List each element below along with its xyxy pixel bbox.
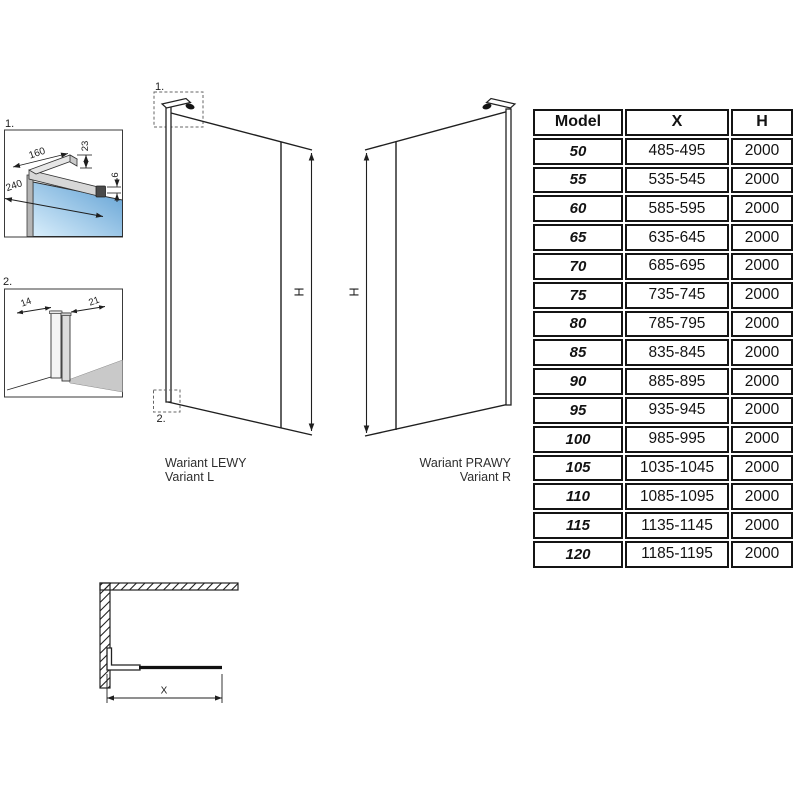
glass-top-edge [365,111,509,150]
table-row: 1151135-11452000 [533,512,793,539]
variant-right-caption-pl: Wariant PRAWY [420,456,512,470]
model-cell: 100 [533,426,623,453]
h-cell: 2000 [731,483,793,510]
table-row: 1201185-11952000 [533,541,793,568]
col-header-model: Model [533,109,623,136]
model-cell: 120 [533,541,623,568]
model-cell: 105 [533,455,623,482]
model-cell: 85 [533,339,623,366]
model-cell: 115 [533,512,623,539]
wall-strip [27,175,33,237]
variant-left-callout-2: 2. [157,413,166,425]
h-cell: 2000 [731,253,793,280]
h-cell: 2000 [731,311,793,338]
x-cell: 635-645 [625,224,729,251]
x-cell: 1085-1095 [625,483,729,510]
table-row: 1051035-10452000 [533,455,793,482]
variant-left-callout-1: 1. [155,81,164,93]
glass-bottom-edge [168,402,312,435]
variant-left-caption-en: Variant L [165,470,214,484]
profile-cap-left [50,311,63,314]
glass-top-edge [171,113,312,150]
wall-top-section [100,583,238,590]
spec-table: Model X H 50485-4952000 55535-5452000 60… [531,107,795,570]
x-cell: 485-495 [625,138,729,165]
variant-left-caption-pl: Wariant LEWY [165,456,247,470]
table-row: 95935-9452000 [533,397,793,424]
table-row: 50485-4952000 [533,138,793,165]
x-cell: 535-545 [625,167,729,194]
variant-right-drawing: H Wariant PRAWY Variant R [348,99,516,485]
height-dim-label: H [293,287,307,296]
support-bracket-plan [107,648,140,670]
dim-label-23: 23 [80,141,91,152]
x-cell: 1135-1145 [625,512,729,539]
callout-box-1 [154,92,203,127]
model-cell: 80 [533,311,623,338]
glass-bottom-edge [365,404,509,436]
x-cell: 585-595 [625,195,729,222]
h-cell: 2000 [731,195,793,222]
table-header-row: Model X H [533,109,793,136]
h-cell: 2000 [731,339,793,366]
table-row: 1101085-10952000 [533,483,793,510]
table-row: 100985-9952000 [533,426,793,453]
detail-2-drawing: 2. 14 21 [0,272,130,402]
x-cell: 935-945 [625,397,729,424]
x-cell: 885-895 [625,368,729,395]
width-dim-label: X [161,686,168,697]
h-cell: 2000 [731,541,793,568]
x-cell: 785-795 [625,311,729,338]
model-cell: 90 [533,368,623,395]
x-cell: 1185-1195 [625,541,729,568]
detail-2-label: 2. [3,276,12,288]
variant-left-drawing: 1. 2. H Wariant LEWY Variant L [154,81,313,484]
model-cell: 50 [533,138,623,165]
x-cell: 685-695 [625,253,729,280]
glass-edge-profile [51,311,61,378]
table-row: 60585-5952000 [533,195,793,222]
model-cell: 110 [533,483,623,510]
h-cell: 2000 [731,282,793,309]
model-cell: 65 [533,224,623,251]
model-cell: 70 [533,253,623,280]
table-row: 90885-8952000 [533,368,793,395]
h-cell: 2000 [731,224,793,251]
profile-cap-right [61,313,71,316]
wall-profile-section [62,313,70,381]
height-dim-label: H [348,287,362,296]
wall-profile [506,109,511,405]
model-cell: 75 [533,282,623,309]
plan-view-drawing: X [85,575,255,710]
x-cell: 835-845 [625,339,729,366]
table-row: 70685-6952000 [533,253,793,280]
technical-sheet: 1. 160 240 23 6 [0,0,800,800]
h-cell: 2000 [731,455,793,482]
x-cell: 1035-1045 [625,455,729,482]
table-row: 80785-7952000 [533,311,793,338]
table-row: 65635-6452000 [533,224,793,251]
model-cell: 60 [533,195,623,222]
wall-profile [166,107,171,403]
h-cell: 2000 [731,426,793,453]
h-cell: 2000 [731,167,793,194]
x-cell: 735-745 [625,282,729,309]
table-row: 75735-7452000 [533,282,793,309]
bracket-end-cap [96,186,106,197]
x-cell: 985-995 [625,426,729,453]
h-cell: 2000 [731,512,793,539]
h-cell: 2000 [731,397,793,424]
elevation-drawings: 1. 2. H Wariant LEWY Variant L H War [140,80,530,490]
dim-label-6: 6 [110,172,121,177]
detail-1-label: 1. [5,118,14,130]
model-cell: 55 [533,167,623,194]
variant-right-caption-en: Variant R [460,470,511,484]
table-row: 85835-8452000 [533,339,793,366]
wall-left-section [100,583,110,688]
model-cell: 95 [533,397,623,424]
col-header-h: H [731,109,793,136]
table-row: 55535-5452000 [533,167,793,194]
h-cell: 2000 [731,368,793,395]
detail-1-drawing: 1. 160 240 23 6 [0,115,130,240]
col-header-x: X [625,109,729,136]
h-cell: 2000 [731,138,793,165]
